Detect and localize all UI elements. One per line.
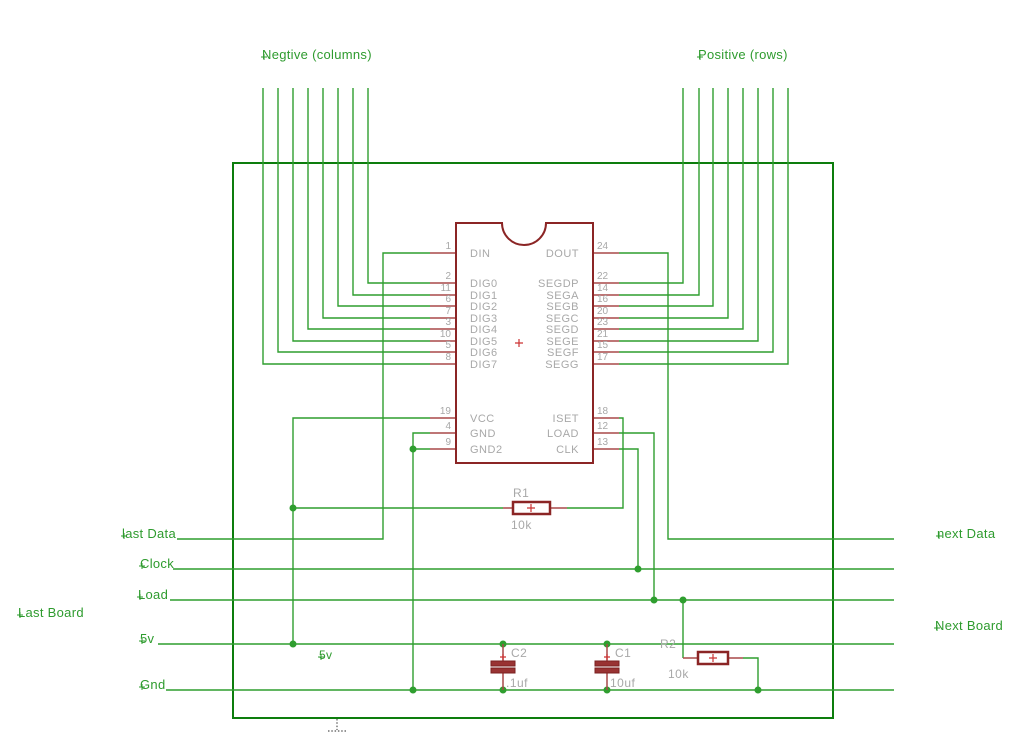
pin-name: GND2 <box>470 444 503 456</box>
pin-number: 4 <box>445 421 451 432</box>
junction-dot <box>410 687 417 694</box>
pin-number: 9 <box>445 437 451 448</box>
pin-number: 1 <box>445 241 451 252</box>
pin-number: 17 <box>597 352 609 363</box>
wire-r2-links[interactable] <box>683 600 758 690</box>
c2-plate-bottom <box>491 668 515 673</box>
pin-number: 10 <box>440 329 452 340</box>
pin-name: SEGD <box>546 324 579 336</box>
c2-value: .1uf <box>506 676 528 690</box>
pin-number: 12 <box>597 421 609 432</box>
junction-dot <box>290 505 297 512</box>
c2-origin-cross <box>500 654 506 660</box>
wire-vcc-5v[interactable] <box>293 418 430 644</box>
label-clock[interactable]: Clock <box>140 556 174 571</box>
pin-number: 16 <box>597 294 609 305</box>
label-next-data[interactable]: next Data <box>937 526 996 541</box>
pin-number: 11 <box>441 283 452 294</box>
pin-name: DIG2 <box>470 301 498 313</box>
c2-ref: C2 <box>511 646 527 660</box>
pin-number: 7 <box>445 306 451 317</box>
r2-ref: R2 <box>660 637 676 651</box>
wire-din-last-data[interactable] <box>177 253 430 539</box>
label-5v[interactable]: 5v <box>140 631 155 646</box>
pin-name: SEGB <box>546 301 579 313</box>
pin-name: ISET <box>553 413 579 425</box>
pin-name: CLK <box>556 444 579 456</box>
pin-number: 2 <box>445 271 451 282</box>
label-next-board[interactable]: Next Board <box>935 618 1003 633</box>
pin-number: 8 <box>445 352 451 363</box>
pin-number: 5 <box>445 340 451 351</box>
label-load[interactable]: Load <box>138 587 168 602</box>
c2-plate-top <box>491 661 515 666</box>
wire-dout-next-data[interactable] <box>619 253 894 539</box>
junction-dot <box>680 597 687 604</box>
junction-dot <box>410 446 417 453</box>
pin-name: DIN <box>470 248 490 260</box>
pin-number: 13 <box>597 437 609 448</box>
junction-dot <box>290 641 297 648</box>
ground-symbol[interactable] <box>328 719 346 731</box>
pin-number: 24 <box>597 241 609 252</box>
pin-name: DIG7 <box>470 359 498 371</box>
capacitor-c2[interactable]: C2 .1uf <box>491 644 528 690</box>
pin-number: 23 <box>597 317 609 328</box>
junction-dot <box>755 687 762 694</box>
pin-number: 15 <box>597 340 609 351</box>
label-negative-columns[interactable]: Negtive (columns) <box>262 47 372 62</box>
pin-name: DIG4 <box>470 324 498 336</box>
c1-value: 10uf <box>610 676 636 690</box>
c1-plate-bottom <box>595 668 619 673</box>
r1-ref: R1 <box>513 486 529 500</box>
pin-number: 3 <box>445 317 451 328</box>
pin-number: 6 <box>445 294 451 305</box>
wire-columns-bundle[interactable] <box>263 88 430 364</box>
pin-name: SEGF <box>547 347 579 359</box>
label-positive-rows[interactable]: Positive (rows) <box>698 47 788 62</box>
resistor-r1[interactable]: R1 10k <box>503 486 567 532</box>
c1-plate-top <box>595 661 619 666</box>
wire-clk-pin[interactable] <box>619 449 638 569</box>
schematic-drawing: DIN DIG0 DIG1 DIG2 DIG3 DIG4 DIG5 DIG6 D… <box>0 0 1024 735</box>
r1-value: 10k <box>511 518 532 532</box>
pin-number: 21 <box>597 329 609 340</box>
ic-led-driver[interactable]: DIN DIG0 DIG1 DIG2 DIG3 DIG4 DIG5 DIG6 D… <box>430 221 619 463</box>
c1-origin-cross <box>604 654 610 660</box>
pin-number: 18 <box>597 406 609 417</box>
pin-name: DOUT <box>546 248 579 260</box>
wire-gnd[interactable] <box>413 433 430 690</box>
schematic-canvas: { "schematic": { "top_labels": { "negati… <box>0 0 1024 735</box>
label-gnd[interactable]: Gnd <box>140 677 165 692</box>
r2-value: 10k <box>668 667 689 681</box>
pin-name: DIG6 <box>470 347 498 359</box>
label-5v-small[interactable]: 5v <box>319 648 332 662</box>
label-last-data[interactable]: last Data <box>122 526 176 541</box>
label-last-board[interactable]: Last Board <box>18 605 84 620</box>
pin-number: 14 <box>597 283 609 294</box>
pin-name: GND <box>470 428 496 440</box>
junction-dot <box>635 566 642 573</box>
pin-name: LOAD <box>547 428 579 440</box>
c1-ref: C1 <box>615 646 631 660</box>
capacitor-c1[interactable]: C1 10uf <box>595 644 636 690</box>
pin-number: 22 <box>597 271 609 282</box>
wire-load-pin[interactable] <box>619 433 654 600</box>
pin-name: SEGDP <box>538 278 579 290</box>
pin-name: VCC <box>470 413 495 425</box>
pin-name: SEGG <box>545 359 579 371</box>
pin-number: 19 <box>440 406 452 417</box>
pin-number: 20 <box>597 306 609 317</box>
pin-name: DIG0 <box>470 278 498 290</box>
wire-rows-bundle[interactable] <box>619 88 788 364</box>
junction-dot <box>651 597 658 604</box>
